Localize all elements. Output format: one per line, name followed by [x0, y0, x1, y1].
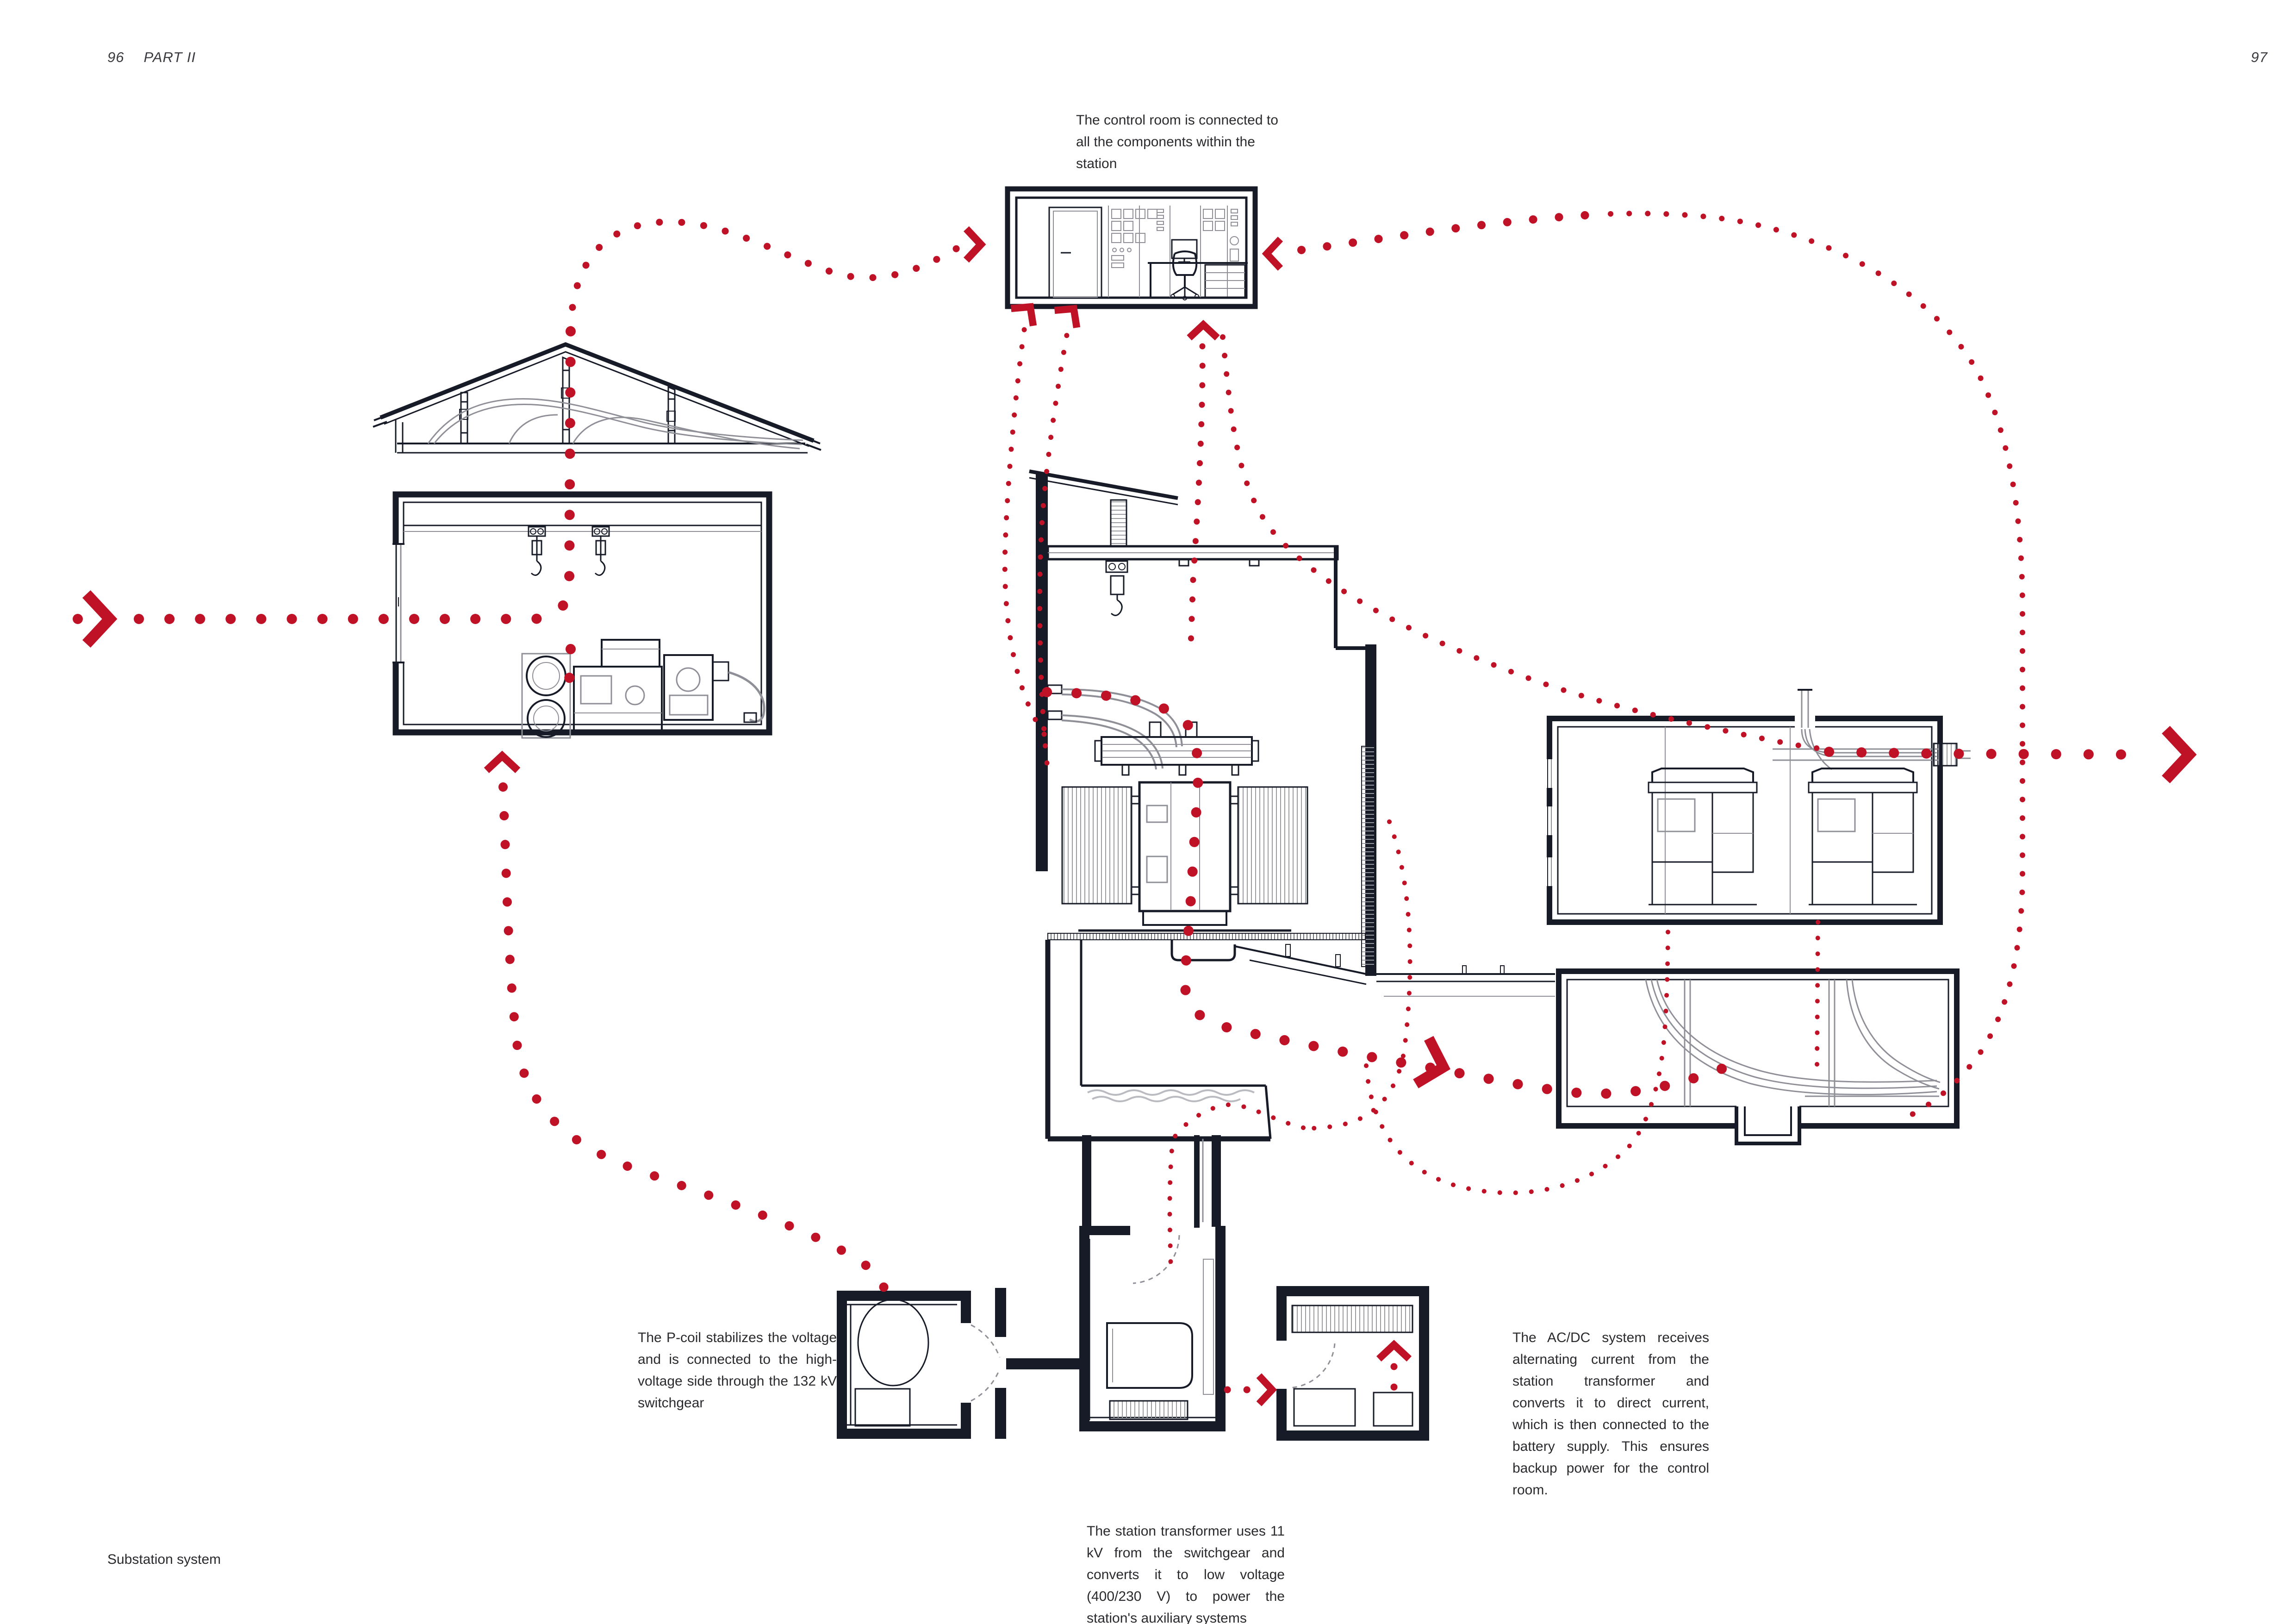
hoist-hook: [529, 527, 545, 575]
book-spread: 96 PART II 97 Substation system The cont…: [0, 0, 2296, 1624]
attic-truss-section: [373, 344, 821, 453]
hoist-hook: [592, 527, 609, 575]
path-grid-to-control-room: [139, 330, 571, 619]
flow-arrow-up-a: [1014, 300, 1039, 323]
switchgear-room-plan: [1545, 690, 1971, 922]
control-room-section: [1008, 189, 1255, 306]
battery-rack: [1292, 1305, 1412, 1332]
ac-dc-room-plan: [1276, 1286, 1429, 1441]
crane-hook: [1106, 561, 1127, 615]
switchgear-cabinet: [1809, 768, 1917, 905]
power-transformer: [1062, 722, 1307, 931]
flow-arrow-grid-entry: [90, 598, 110, 640]
flow-arrow-exit-right: [2170, 734, 2189, 775]
flow-arrow-into-control-left: [969, 231, 981, 257]
flow-arrow-up-c: [1192, 325, 1215, 335]
station-transformer-room-plan: [1079, 1135, 1226, 1431]
cable-basement-section: [1559, 971, 1957, 1143]
transformer-hall-section: [1029, 471, 1555, 1139]
substation-diagram: [0, 0, 2296, 1624]
control-desk: [1148, 240, 1248, 297]
p-coil-apparatus: [522, 640, 764, 738]
flow-dot: [73, 614, 83, 624]
oil-pit: [1048, 940, 1366, 1139]
path-to-control-room-right: [1301, 214, 1611, 250]
flow-arrow-to-basement: [1420, 1043, 1449, 1086]
flow-arrow-into-control-right: [1267, 242, 1278, 266]
p-coil-room-plan: [837, 1288, 1080, 1439]
flow-arrow-into-acdc: [1262, 1378, 1272, 1401]
flow-arrow-into-hall: [489, 756, 515, 768]
flow-arrow-battery: [1381, 1345, 1406, 1356]
path-pcoil-room-to-hall: [503, 787, 885, 1293]
path-control-room-to-switchgear: [1223, 337, 1823, 749]
